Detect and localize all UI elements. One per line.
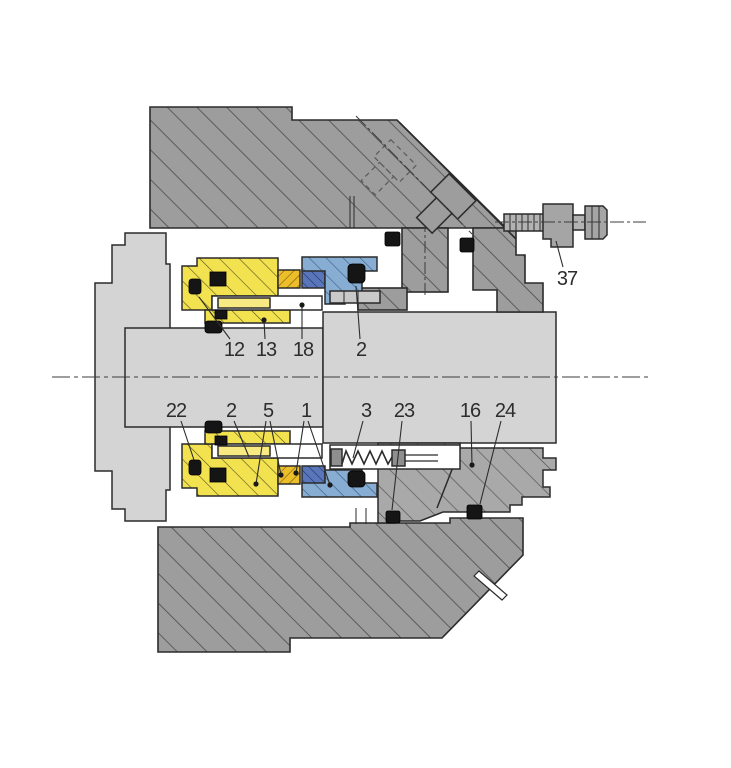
callout-label-22: 22 [166,400,187,422]
shaft-seal-upper [205,321,222,333]
clamp-bolt-37 [504,204,607,247]
leader-dot-1 [327,482,332,487]
leader-dot-1 [293,470,298,475]
callout-label-23: 23 [394,400,415,422]
callout-label-16: 16 [460,400,481,422]
leader-dot-5 [278,472,283,477]
clamp-block [543,204,573,247]
callout-label-1: 1 [301,400,312,422]
stationary-seat-lower [302,466,325,484]
o-ring-upper-left [189,279,201,294]
pusher-sleeve-upper [330,291,380,303]
o-ring-gland-face-a [385,232,400,246]
callout-label-2: 2 [356,339,367,361]
spring-assembly [330,445,460,469]
lower-housing [158,518,523,652]
callout-label-2: 2 [226,400,237,422]
callout-label-3: 3 [361,400,372,422]
shaft-seal-lower [205,421,222,433]
o-ring-seat-upper [348,264,365,283]
leader-dot-16 [469,462,474,467]
set-screw-lower [210,468,226,482]
callout-label-24: 24 [495,400,516,422]
gland-right-block [473,228,543,312]
leader-dot-18 [299,302,304,307]
callout-label-18: 18 [293,339,314,361]
band-seal-lower [215,436,227,445]
seal-cross-section-figure: 121318237222513231624 [0,0,731,768]
leader-dot-13 [261,317,266,322]
callout-label-5: 5 [263,400,274,422]
drive-pin-upper [218,298,270,308]
o-ring-sleeve-24 [467,505,482,519]
o-ring-seat-lower [348,471,365,487]
callout-label-13: 13 [256,339,277,361]
o-ring-gland-face-b [460,238,474,252]
band-seal-upper [215,310,227,319]
stationary-seat-upper [302,270,325,288]
o-ring-lower-left [189,460,201,475]
seal-face-upper [278,270,300,288]
o-ring-gland-lower-23 [386,511,400,523]
callout-label-12: 12 [224,339,245,361]
leader-dot-5 [253,481,258,486]
set-screw-upper [210,272,226,286]
diagram-canvas: 121318237222513231624 [0,0,731,768]
spring-seat-left [331,449,342,466]
callout-label-37: 37 [557,268,578,290]
